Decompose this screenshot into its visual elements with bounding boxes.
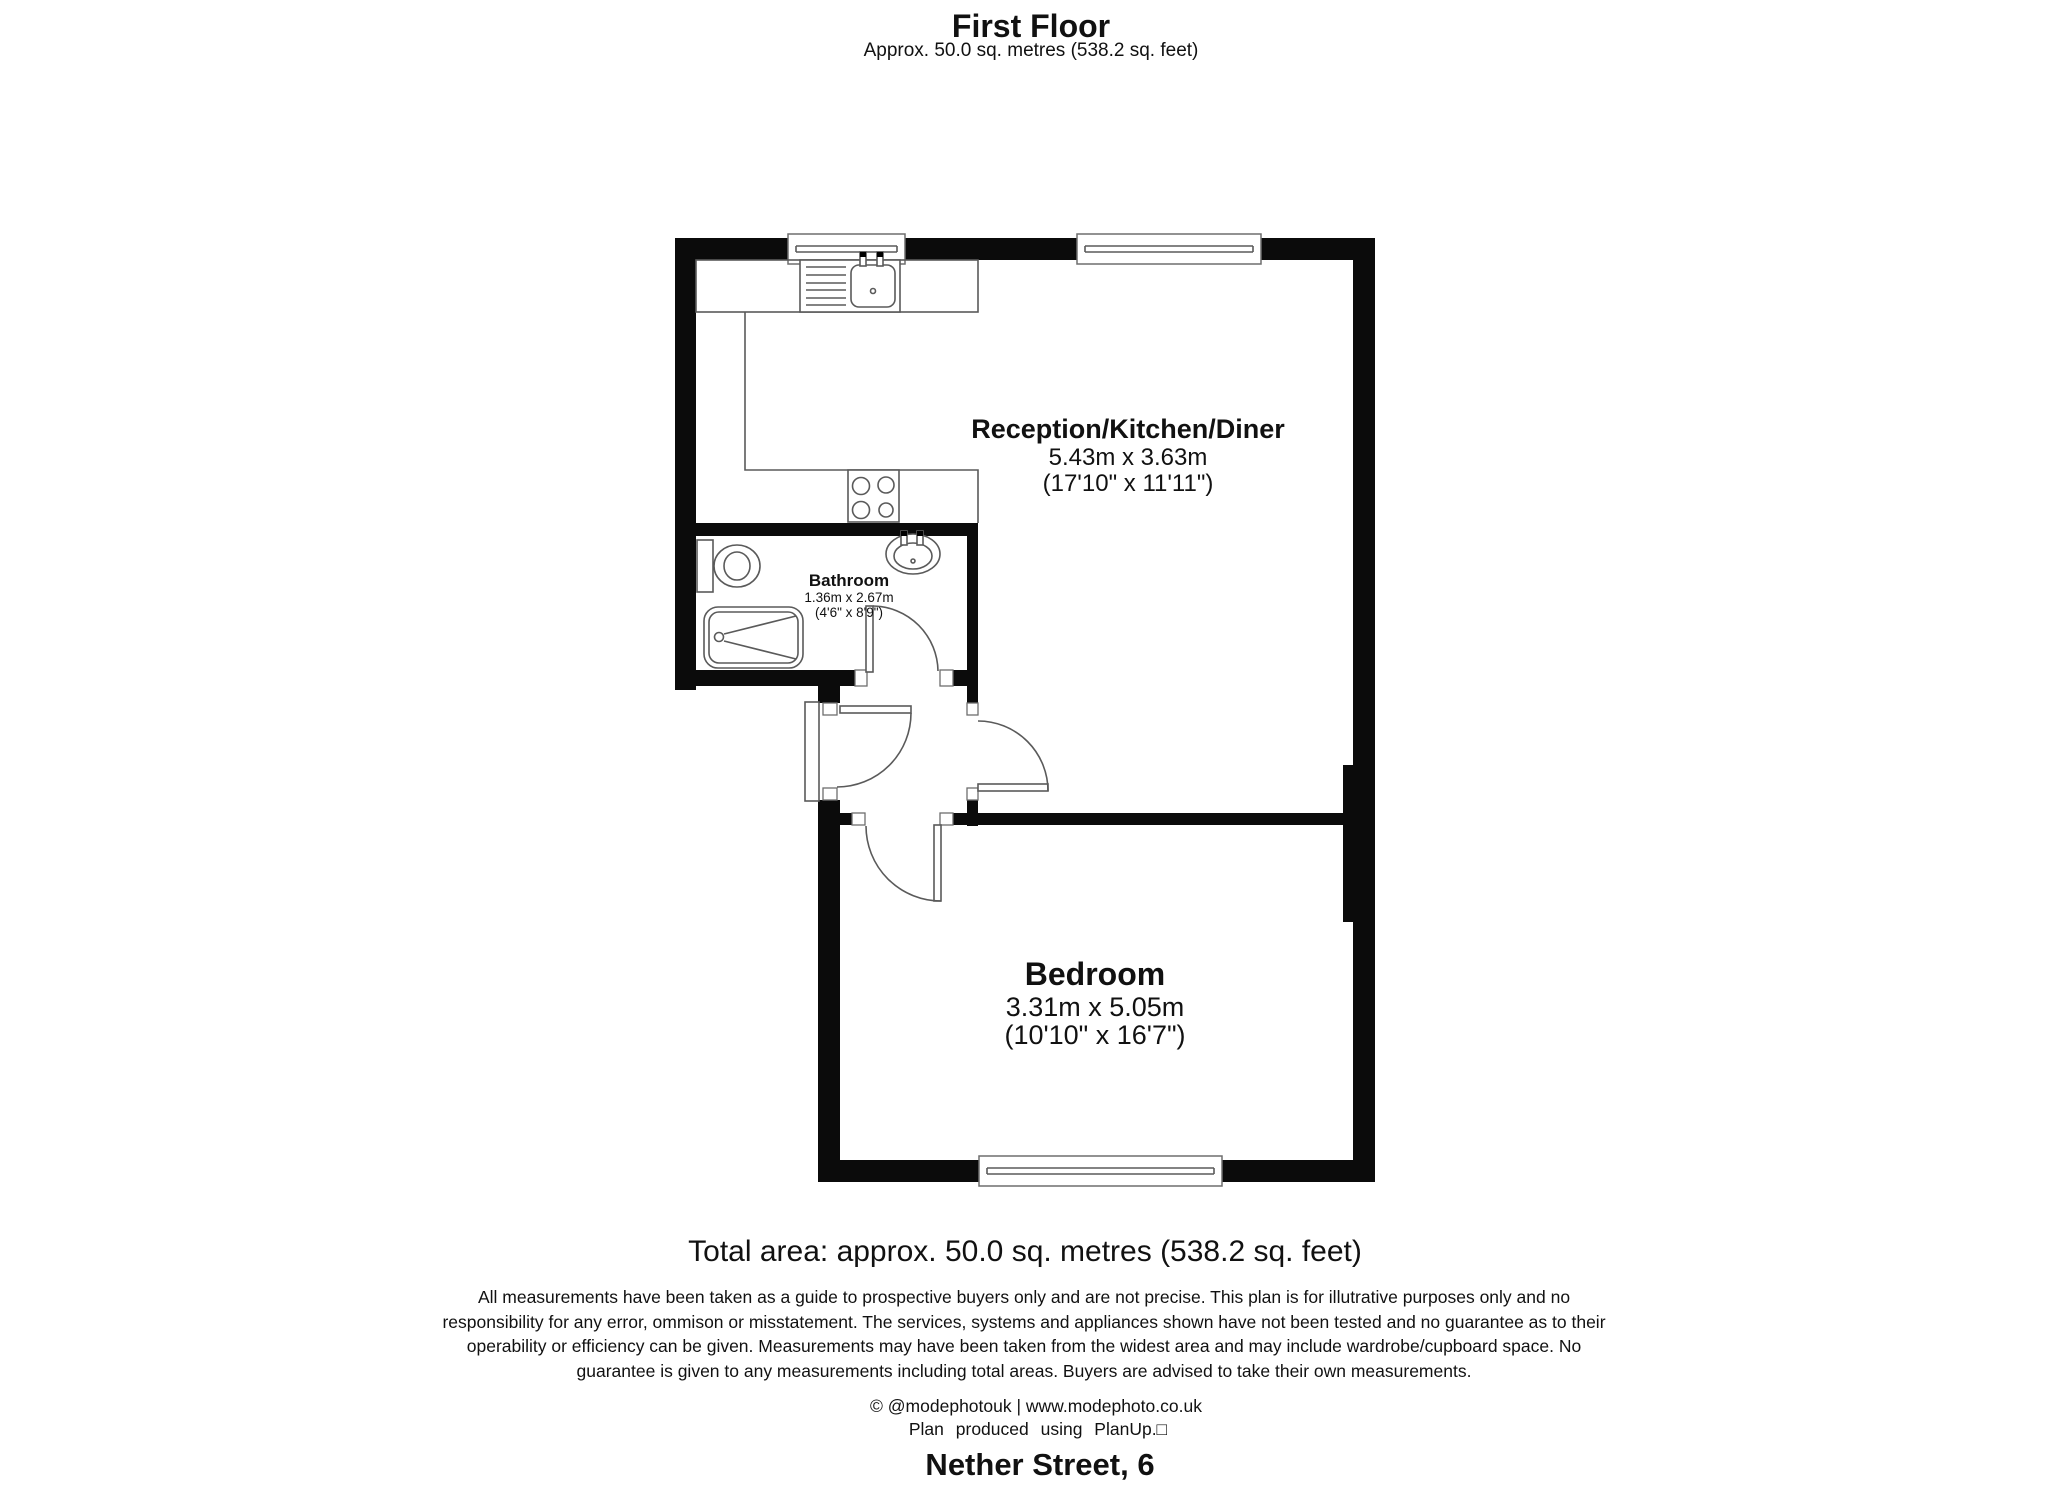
jamb	[823, 788, 837, 800]
disclaimer: All measurements have been taken as a gu…	[442, 1285, 1605, 1383]
produced-by-text: Plan produced using PlanUp.□	[909, 1419, 1167, 1440]
basin-icon	[886, 531, 940, 574]
bathtub-icon	[704, 607, 803, 668]
kitchen-units	[696, 252, 978, 523]
disclaimer-line: guarantee is given to any measurements i…	[442, 1359, 1605, 1384]
toilet-icon	[697, 540, 760, 592]
room-label-bathroom: Bathroom 1.36m x 2.67m (4'6" x 8'9")	[804, 571, 893, 620]
reception-dimensions-metric: 5.43m x 3.63m	[971, 445, 1285, 471]
bathroom-name: Bathroom	[804, 571, 893, 591]
wall-left-lower	[818, 800, 840, 1182]
jamb	[852, 813, 865, 825]
credit-text: © @modephotouk | www.modephoto.co.uk	[870, 1396, 1202, 1417]
wall-left-lower-upper	[818, 683, 840, 703]
reception-dimensions-imperial: (17'10" x 11'11")	[971, 471, 1285, 497]
kitchen-hob-icon	[848, 470, 899, 522]
jamb	[967, 788, 978, 800]
bathroom-dimensions-imperial: (4'6" x 8'9")	[804, 606, 893, 621]
disclaimer-line: All measurements have been taken as a gu…	[442, 1285, 1605, 1310]
wall-right-pier	[1343, 765, 1354, 922]
bedroom-name: Bedroom	[1004, 956, 1185, 993]
window-bedroom	[979, 1156, 1222, 1186]
bedroom-dimensions-metric: 3.31m x 5.05m	[1004, 993, 1185, 1021]
address-text: Nether Street, 6	[925, 1447, 1154, 1483]
bathroom-dimensions-metric: 1.36m x 2.67m	[804, 591, 893, 606]
wall-bathroom-top	[675, 523, 978, 536]
room-label-reception: Reception/Kitchen/Diner 5.43m x 3.63m (1…	[971, 414, 1285, 497]
jamb	[940, 670, 953, 686]
wall-bedroom-top-stub	[840, 813, 852, 825]
disclaimer-line: responsibility for any error, ommison or…	[442, 1310, 1605, 1335]
wall-right	[1353, 238, 1375, 1182]
kitchen-sink-icon	[800, 252, 900, 312]
jamb	[940, 813, 953, 825]
doors	[805, 606, 1048, 901]
jamb	[823, 703, 837, 715]
total-area-text: Total area: approx. 50.0 sq. metres (538…	[688, 1235, 1362, 1269]
wall-top	[675, 238, 1375, 260]
entrance-door	[805, 702, 911, 801]
disclaimer-line: operability or efficiency can be given. …	[442, 1334, 1605, 1359]
wall-left-upper	[675, 238, 696, 690]
bedroom-door	[866, 825, 941, 901]
room-label-bedroom: Bedroom 3.31m x 5.05m (10'10" x 16'7")	[1004, 956, 1185, 1049]
bedroom-dimensions-imperial: (10'10" x 16'7")	[1004, 1021, 1185, 1049]
wall-bedroom-top	[953, 813, 1343, 825]
hall-reception-door	[978, 721, 1048, 791]
window-reception	[1077, 234, 1261, 264]
reception-name: Reception/Kitchen/Diner	[971, 414, 1285, 445]
jamb	[967, 703, 978, 715]
page-subtitle: Approx. 50.0 sq. metres (538.2 sq. feet)	[864, 40, 1199, 62]
wall-bathroom-right-upper	[967, 523, 978, 703]
